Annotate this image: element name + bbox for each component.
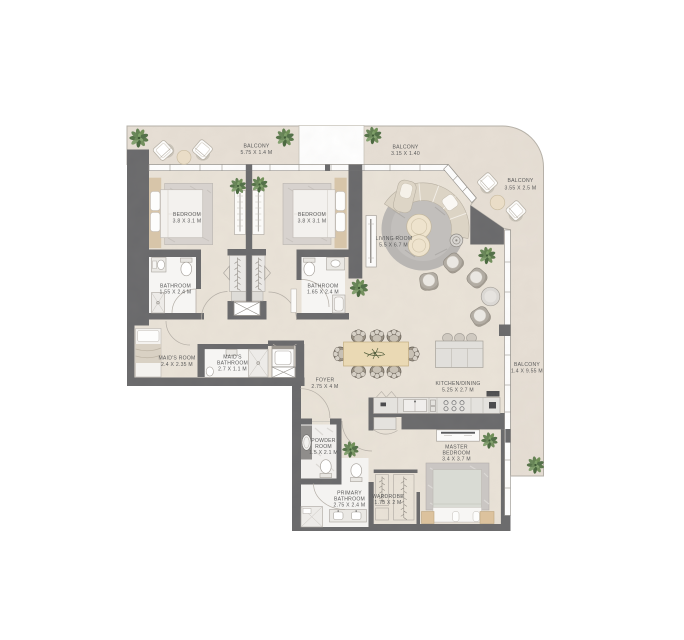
svg-text:2.75 X 2.4 M: 2.75 X 2.4 M [334, 503, 366, 509]
svg-text:1.65 X 2.4 M: 1.65 X 2.4 M [307, 290, 339, 296]
svg-text:3.8 X 3.1 M: 3.8 X 3.1 M [173, 219, 202, 225]
svg-text:3.55 X 2.5 M: 3.55 X 2.5 M [505, 186, 537, 192]
svg-text:3.4 X 3.7 M: 3.4 X 3.7 M [442, 457, 471, 463]
svg-text:1.55 X 2.4 M: 1.55 X 2.4 M [160, 290, 192, 296]
svg-text:FOYER: FOYER [316, 378, 335, 384]
svg-text:BEDROOM: BEDROOM [173, 212, 201, 218]
svg-text:BEDROOM: BEDROOM [298, 212, 326, 218]
svg-text:1.5 X 2.1 M: 1.5 X 2.1 M [309, 450, 338, 456]
svg-text:1.4 X 9.55 M: 1.4 X 9.55 M [511, 369, 543, 375]
svg-text:5.5 X 6.7 M: 5.5 X 6.7 M [379, 243, 408, 249]
svg-text:BALCONY: BALCONY [514, 362, 540, 368]
svg-text:BALCONY: BALCONY [243, 144, 269, 150]
svg-text:2.4 X 2.35 M: 2.4 X 2.35 M [161, 362, 193, 368]
svg-text:2.7 X 1.1 M: 2.7 X 1.1 M [218, 367, 247, 373]
svg-text:3.8 X 3.1 M: 3.8 X 3.1 M [298, 219, 327, 225]
svg-text:MAID'S ROOM: MAID'S ROOM [158, 356, 195, 362]
svg-text:1.75 X 2 M: 1.75 X 2 M [374, 500, 401, 506]
svg-text:BALCONY: BALCONY [392, 145, 418, 151]
svg-text:5.75 X 1.4 M: 5.75 X 1.4 M [241, 150, 273, 156]
svg-text:BALCONY: BALCONY [507, 178, 533, 184]
svg-text:KITCHEN/DINING: KITCHEN/DINING [435, 381, 480, 387]
svg-text:2.75 X 4 M: 2.75 X 4 M [311, 384, 338, 390]
svg-text:LIVING ROOM: LIVING ROOM [376, 236, 413, 242]
svg-text:3.15 X 1.40: 3.15 X 1.40 [391, 151, 420, 157]
svg-text:OVEN: OVEN [488, 392, 499, 396]
svg-text:5.25 X 2.7 M: 5.25 X 2.7 M [442, 388, 474, 394]
